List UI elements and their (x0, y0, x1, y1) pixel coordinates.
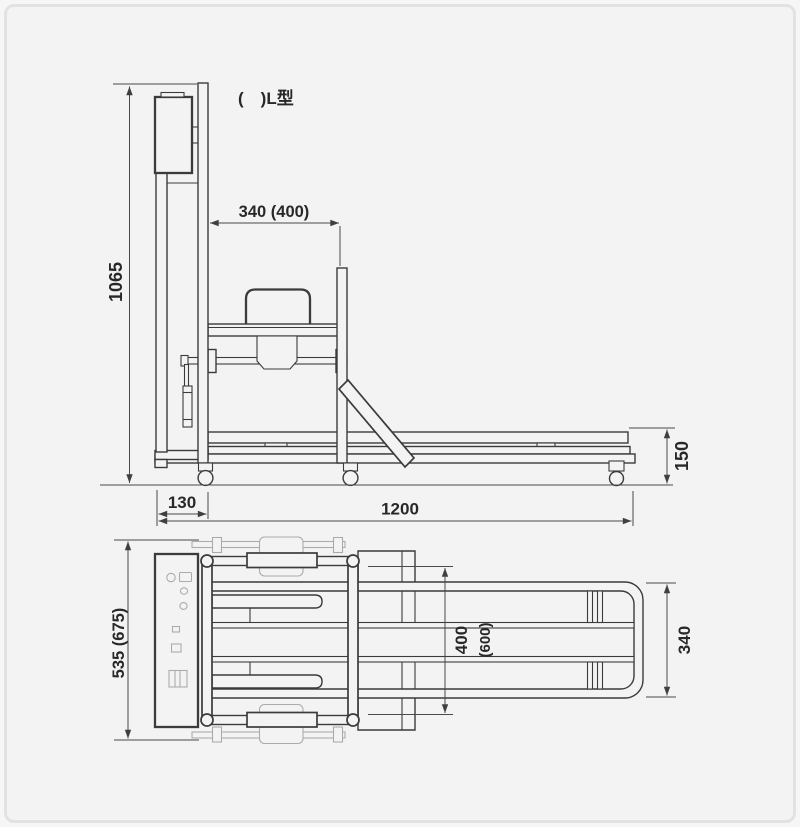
dim-text-inner-width-alt: (600) (477, 622, 494, 657)
caster-wheel-right (610, 472, 624, 486)
mount-plates (358, 551, 415, 730)
caster-mount-right (609, 461, 624, 471)
type-note-label: ( )L型 (238, 88, 294, 108)
dim-text-overall-length: 1200 (381, 500, 419, 519)
drawing-page: 1065 340 (400) 130 1200 150 (0, 0, 800, 827)
end-bar-bottom-a (588, 662, 593, 689)
side-view (100, 83, 673, 486)
dim-text-overall-width: 535 (675) (110, 608, 128, 679)
dim-text-end-frame-width: 340 (675, 626, 694, 654)
fork-carriage (257, 336, 297, 369)
backrest-pad (246, 290, 310, 327)
pivot-top-right (347, 555, 359, 567)
pivot-bottom-left (201, 714, 213, 726)
center-rail-lower (212, 657, 634, 663)
mast-assembly (155, 83, 208, 468)
pivot-top-left (201, 555, 213, 567)
dim-inner-width: 400 (600) (368, 567, 494, 715)
pivot-bottom-right (347, 714, 359, 726)
end-bar-top-a (588, 591, 593, 623)
carriage-platform (208, 324, 342, 336)
caster-wheel-left (198, 471, 213, 486)
crossbar-left (202, 558, 212, 723)
motor-box (155, 97, 192, 173)
clamp-pad-bottom-plan (247, 713, 317, 728)
rod-bracket-left (208, 350, 216, 373)
motor-box-cap (161, 93, 184, 98)
valve-stem (185, 365, 189, 387)
technical-drawing: 1065 340 (400) 130 1200 150 (0, 0, 800, 827)
clamp-pad-top-plan (247, 553, 317, 568)
mast-foot (155, 460, 167, 468)
fork-arm-bottom (212, 675, 322, 688)
deck-plate (208, 432, 628, 443)
casters (198, 461, 624, 486)
caster-wheel-mid (343, 471, 358, 486)
dim-deck-height: 150 (629, 428, 692, 484)
dim-text-clamp-stroke: 340 (400) (239, 203, 310, 221)
support-post (337, 268, 347, 463)
control-panel (155, 554, 198, 727)
plan-view (155, 537, 643, 744)
dim-text-inner-width: 400 (452, 626, 471, 654)
crossbar-right (348, 558, 358, 723)
conveyor-frame (212, 582, 643, 698)
dim-overall-length: 1200 (159, 491, 634, 526)
alt-tab-top-right (334, 538, 343, 553)
dim-clamp-stroke: 340 (400) (210, 203, 340, 266)
dim-text-mast-offset: 130 (168, 493, 196, 512)
clamp-mechanism-plan (201, 553, 359, 727)
center-rail-upper (212, 623, 634, 629)
dim-text-deck-height: 150 (672, 441, 692, 471)
mast-rail (156, 173, 167, 452)
end-bar-bottom-b (598, 662, 603, 689)
caster-mount-left (199, 463, 213, 471)
dim-end-frame-width: 340 (646, 583, 694, 697)
alt-tab-bottom-left (213, 727, 222, 742)
mast-column (198, 83, 208, 463)
alt-tab-bottom-right (334, 727, 343, 742)
dim-text-overall-height: 1065 (106, 262, 126, 302)
lift-frame-bar (208, 447, 630, 455)
end-bar-top-b (598, 591, 603, 623)
alt-tab-top-left (213, 538, 222, 553)
fork-arm-top (212, 595, 322, 608)
caster-mount-mid (344, 463, 358, 471)
hydraulic-cylinder (183, 386, 192, 427)
